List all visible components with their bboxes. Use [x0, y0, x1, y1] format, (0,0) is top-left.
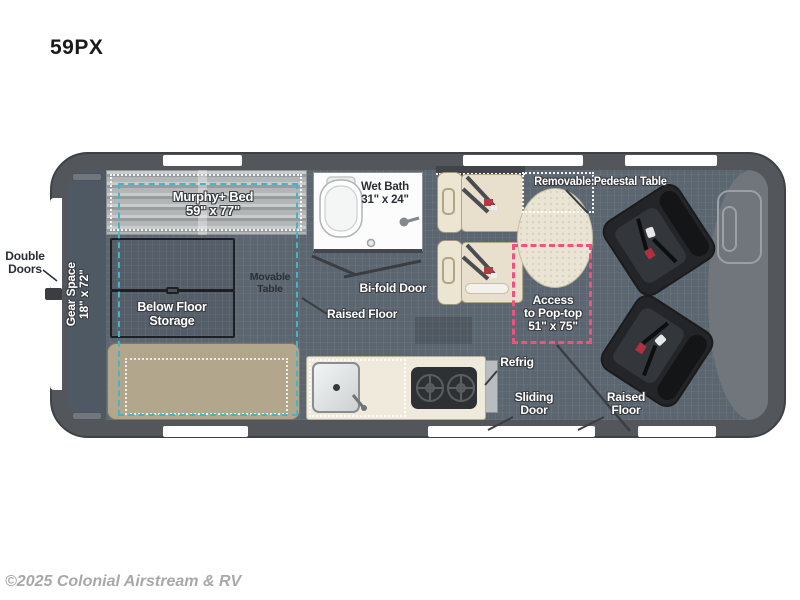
window-bottom-front: [638, 426, 716, 437]
bifold-door-label: Bi-fold Door: [349, 282, 437, 295]
movable-table-label: Movable Table: [248, 272, 292, 295]
below-floor-storage-label: Below Floor Storage: [112, 301, 232, 329]
floor-shadow-mat: [415, 317, 472, 344]
passenger-seat-2-armrest: [442, 257, 455, 284]
gear-space-label: Gear Space 18" x 72": [65, 239, 91, 349]
murphy-bed-label: Murphy+ Bed 59" x 77": [148, 190, 278, 219]
double-doors-label: Double Doors: [2, 250, 48, 276]
window-top-front: [625, 155, 717, 166]
rear-step-bottom: [72, 412, 102, 420]
stove: [411, 367, 477, 409]
sliding-door-opening: [428, 426, 595, 437]
raised-floor-mid-label: Raised Floor: [327, 308, 405, 321]
sliding-door-label: Sliding Door: [510, 391, 558, 417]
passenger-seat-1-armrest: [442, 188, 455, 215]
rear-door-upper: [50, 198, 62, 290]
rear-door-lower: [50, 300, 62, 390]
raised-floor-right-label: Raised Floor: [599, 391, 653, 417]
window-bottom-rear: [163, 426, 248, 437]
seat-base-strip: [465, 283, 509, 294]
window-top-rear: [163, 155, 242, 166]
removable-pedestal-table-label: Removable Pedestal Table: [534, 176, 667, 189]
cab-console-inner-outline: [722, 206, 737, 252]
access-pop-top-label: Access to Pop-top 51" x 75": [507, 294, 599, 334]
model-code: 59PX: [50, 36, 103, 60]
rear-step-top: [72, 173, 102, 181]
window-top-middle: [463, 155, 583, 166]
passenger-seat-1-cushion: [461, 174, 523, 232]
wet-bath-label: Wet Bath 31" x 24": [351, 181, 419, 207]
galley-dotted-outline: [309, 359, 406, 417]
floorplan-page: 59PX Double Doors Gear Space 18" x 72" M…: [0, 0, 800, 600]
rear-door-latch: [45, 288, 62, 300]
refrig-label: Refrig: [495, 356, 539, 369]
watermark: ©2025 Colonial Airstream & RV: [5, 573, 241, 591]
